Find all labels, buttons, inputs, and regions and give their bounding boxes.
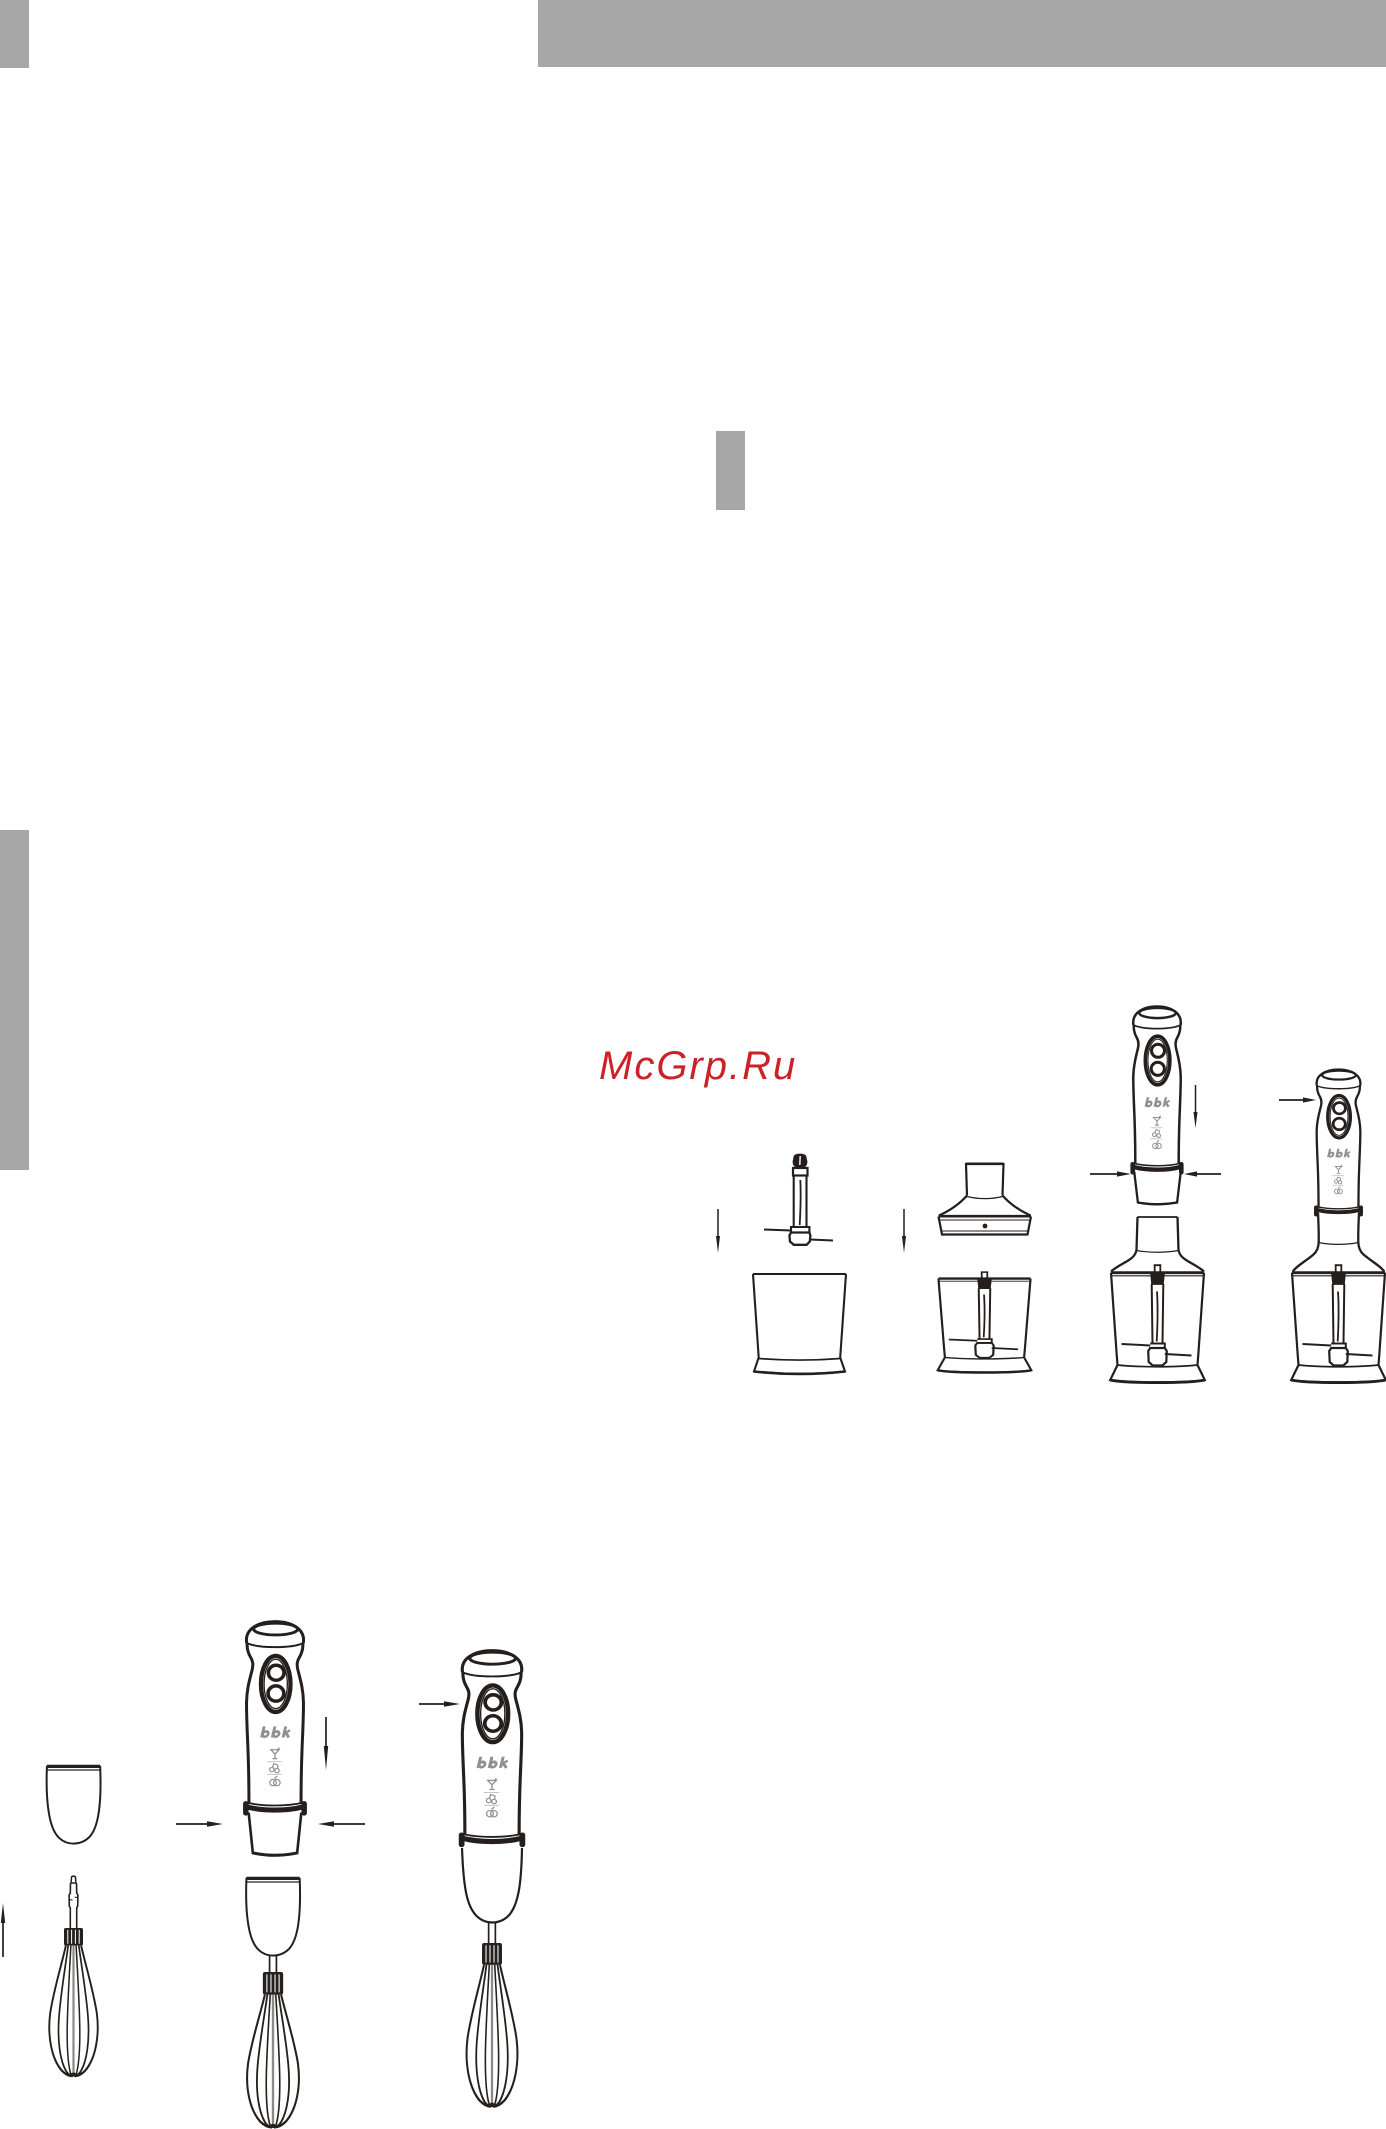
svg-text:McGrp.Ru: McGrp.Ru <box>599 1044 797 1088</box>
